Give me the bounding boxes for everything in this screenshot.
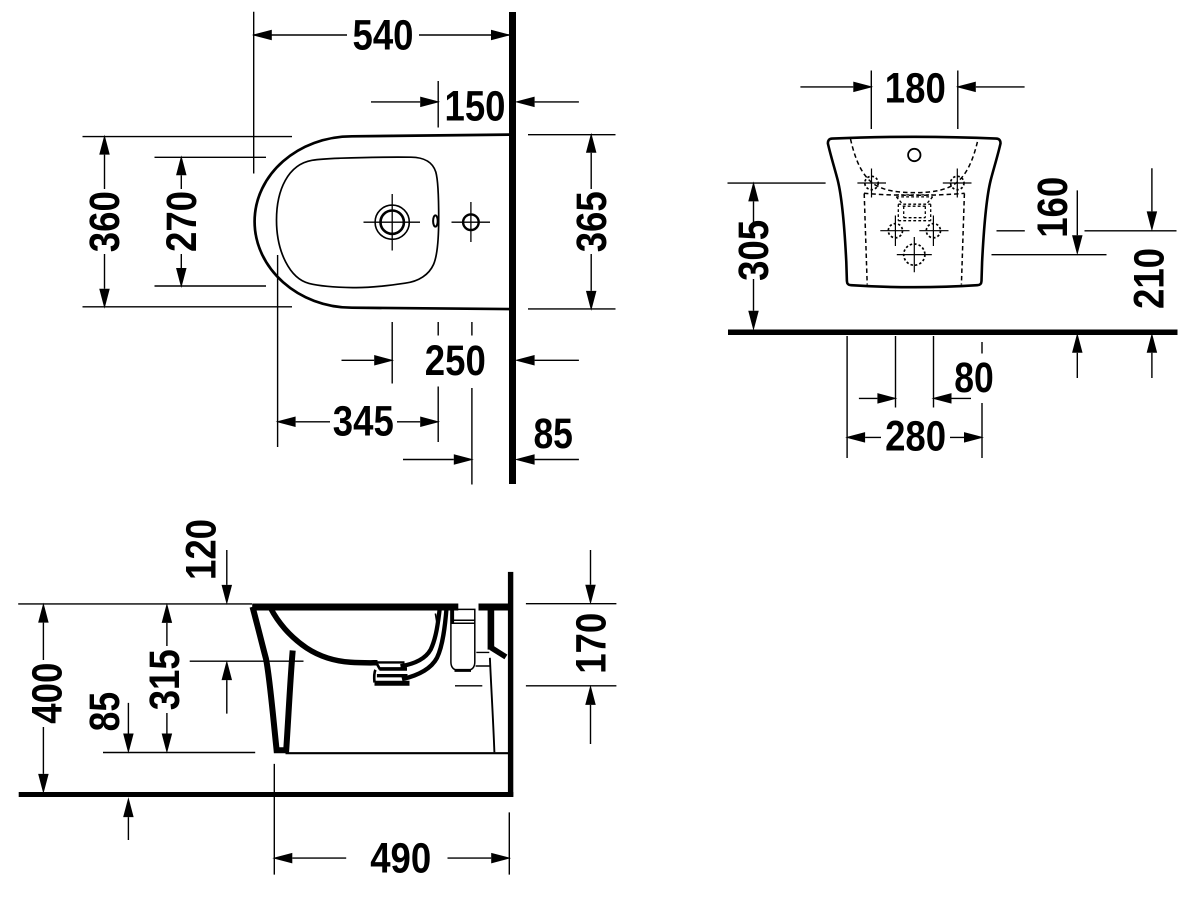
svg-text:85: 85 — [533, 410, 573, 458]
svg-text:160: 160 — [1029, 177, 1077, 238]
svg-text:400: 400 — [24, 663, 72, 724]
svg-text:305: 305 — [730, 220, 778, 281]
svg-text:120: 120 — [177, 519, 225, 580]
svg-text:490: 490 — [370, 835, 431, 883]
svg-text:250: 250 — [425, 337, 486, 385]
svg-text:270: 270 — [158, 191, 206, 252]
svg-text:85: 85 — [81, 692, 129, 732]
svg-text:180: 180 — [885, 64, 946, 112]
svg-text:345: 345 — [333, 397, 394, 445]
svg-text:540: 540 — [353, 12, 414, 60]
svg-text:150: 150 — [445, 82, 506, 130]
svg-text:315: 315 — [141, 649, 189, 710]
svg-text:210: 210 — [1125, 248, 1173, 309]
svg-text:170: 170 — [568, 613, 616, 674]
svg-text:80: 80 — [954, 354, 994, 402]
svg-text:280: 280 — [885, 412, 946, 460]
svg-text:365: 365 — [568, 191, 616, 252]
svg-text:360: 360 — [81, 191, 129, 252]
